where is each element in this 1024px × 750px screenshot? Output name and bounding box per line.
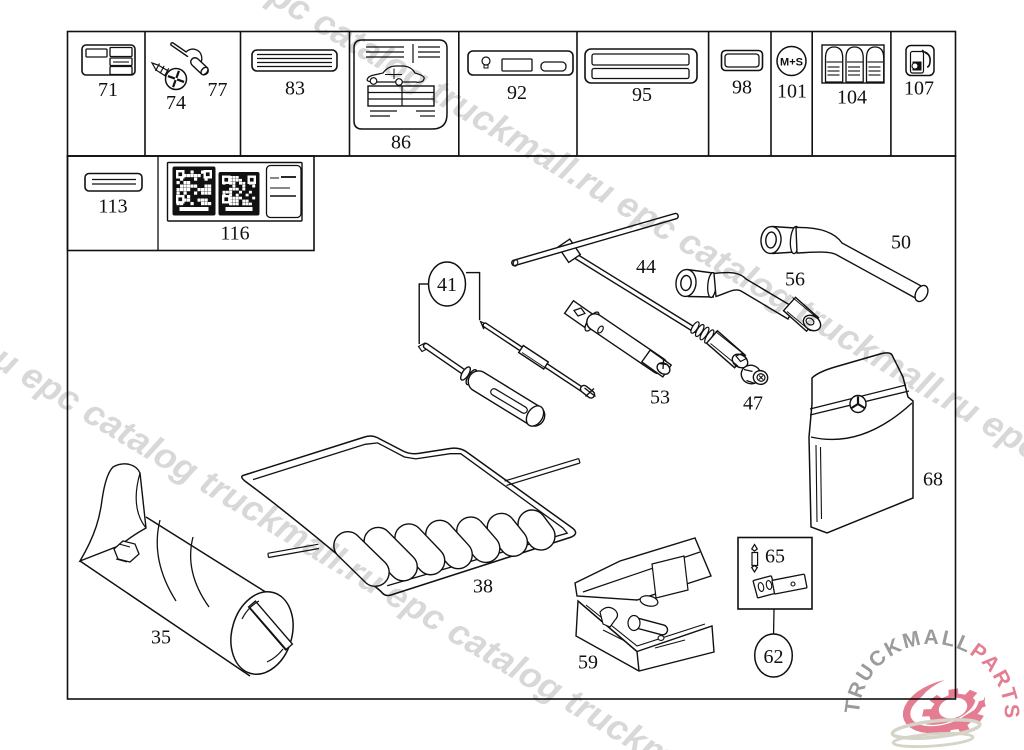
svg-text:M+S: M+S — [780, 57, 803, 69]
svg-text:53: 53 — [650, 387, 670, 409]
svg-text:116: 116 — [220, 223, 249, 245]
svg-text:62: 62 — [764, 646, 784, 668]
svg-text:65: 65 — [765, 546, 785, 568]
svg-text:71: 71 — [98, 79, 118, 101]
svg-text:92: 92 — [507, 82, 527, 104]
svg-text:35: 35 — [151, 627, 171, 649]
svg-text:104: 104 — [837, 87, 867, 109]
svg-text:98: 98 — [732, 77, 752, 99]
svg-text:41: 41 — [437, 274, 457, 296]
svg-text:83: 83 — [285, 78, 305, 100]
svg-text:68: 68 — [923, 469, 943, 491]
svg-text:86: 86 — [391, 132, 411, 154]
svg-text:101: 101 — [777, 81, 807, 103]
svg-text:74: 74 — [166, 92, 186, 114]
svg-text:47: 47 — [743, 393, 763, 415]
svg-text:44: 44 — [636, 256, 656, 278]
svg-text:95: 95 — [632, 84, 652, 106]
svg-text:50: 50 — [891, 232, 911, 254]
svg-text:38: 38 — [473, 576, 493, 598]
svg-text:113: 113 — [98, 196, 127, 218]
svg-text:77: 77 — [208, 79, 228, 101]
svg-text:59: 59 — [578, 652, 598, 674]
svg-text:107: 107 — [904, 78, 934, 100]
